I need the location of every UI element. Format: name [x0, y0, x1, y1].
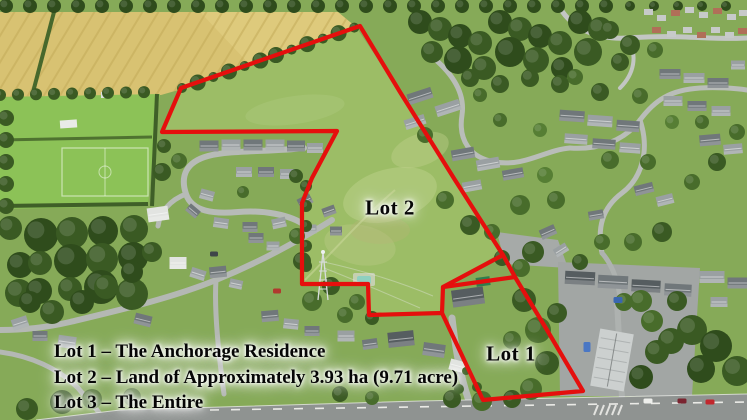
legend-line-lot1: Lot 1 – The Anchorage Residence: [54, 339, 458, 365]
lot2-area-label: Lot 2: [365, 196, 415, 221]
lots-legend: Lot 1 – The Anchorage Residence Lot 2 – …: [54, 339, 458, 416]
aerial-photo-stage: Lot 2 Lot 1 Lot 1 – The Anchorage Reside…: [0, 0, 747, 420]
legend-line-lot2: Lot 2 – Land of Approximately 3.93 ha (9…: [54, 365, 458, 391]
lot1-area-label: Lot 1: [486, 342, 536, 367]
legend-line-lot3: Lot 3 – The Entire: [54, 390, 458, 416]
